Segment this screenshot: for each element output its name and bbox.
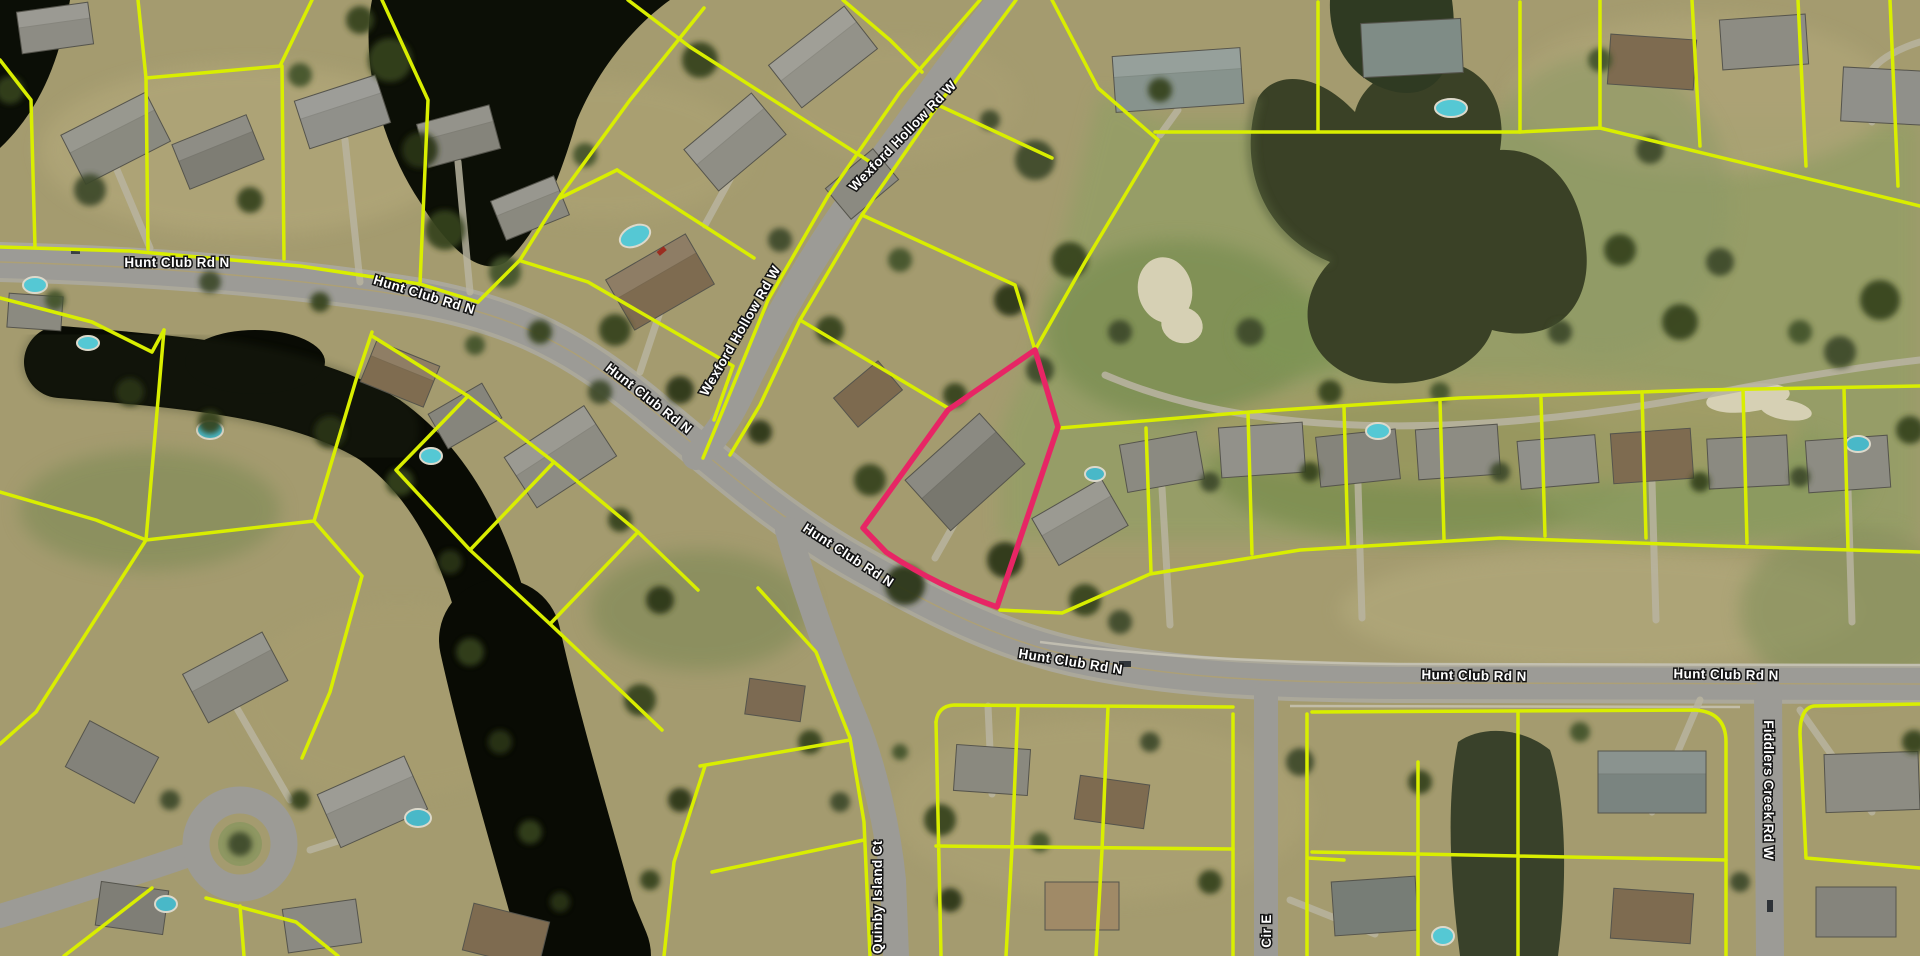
road-label-hunt-club-rd-n-6: Hunt Club Rd N <box>1421 667 1527 684</box>
road-label-fiddlers-creek-rd-w: Fiddlers Creek Rd W <box>1761 720 1776 860</box>
road-label-hunt-club-rd-n-7: Hunt Club Rd N <box>1673 666 1779 683</box>
pond-bottom-right <box>1451 731 1565 956</box>
road-label-hunt-club-rd-n-1: Hunt Club Rd N <box>124 255 229 270</box>
map-canvas[interactable]: Hunt Club Rd NHunt Club Rd NHunt Club Rd… <box>0 0 1920 956</box>
road-label-quinby-island-ct: Quinby Island Ct <box>870 840 885 954</box>
road-label-cir-e: Cir E <box>1259 914 1274 948</box>
